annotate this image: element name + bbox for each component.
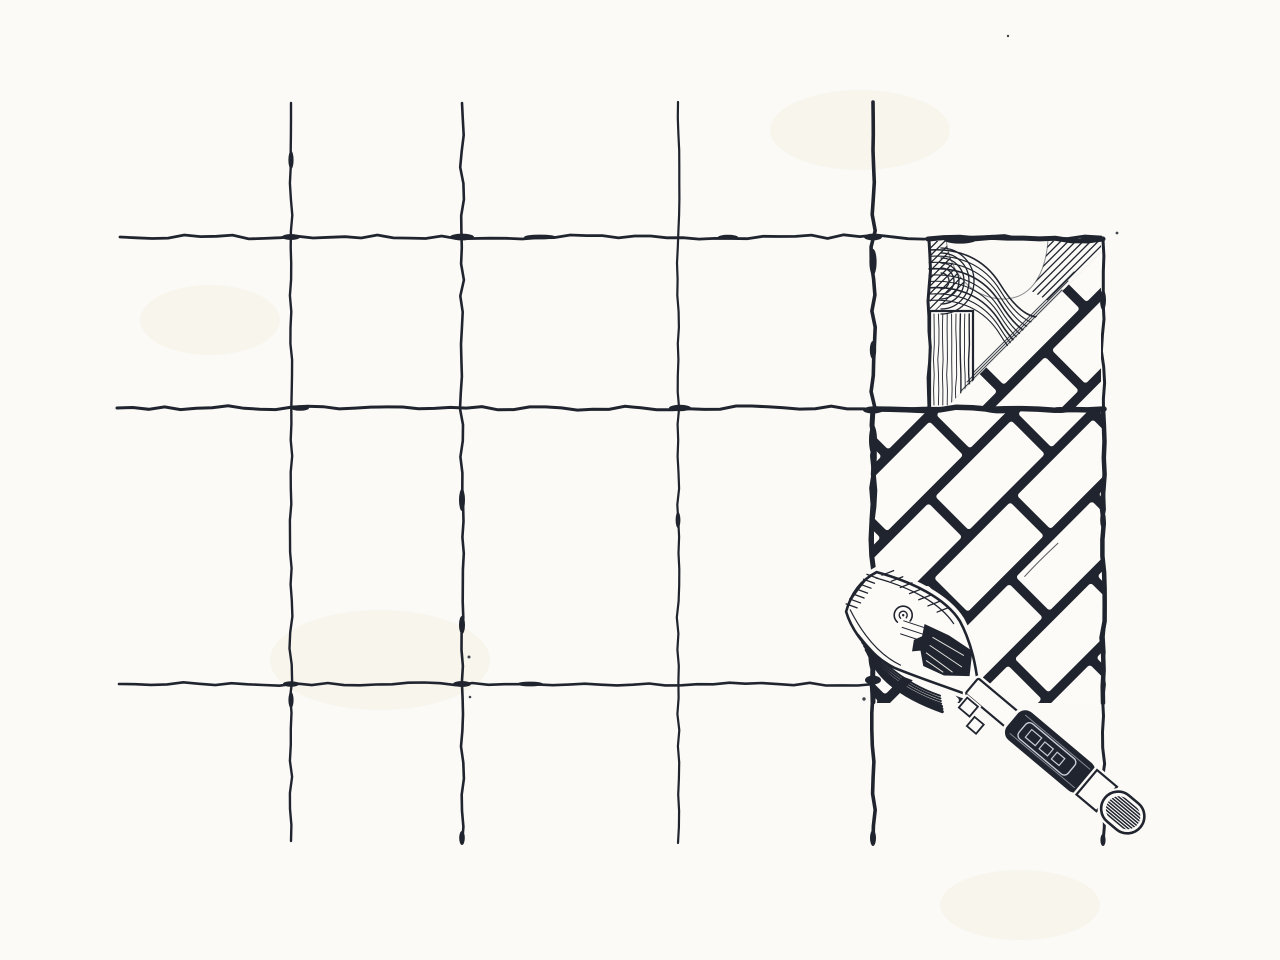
illustration-canvas [0,0,1280,960]
tiling-sketch-svg [0,0,1280,960]
sketch-figure [0,0,1280,960]
